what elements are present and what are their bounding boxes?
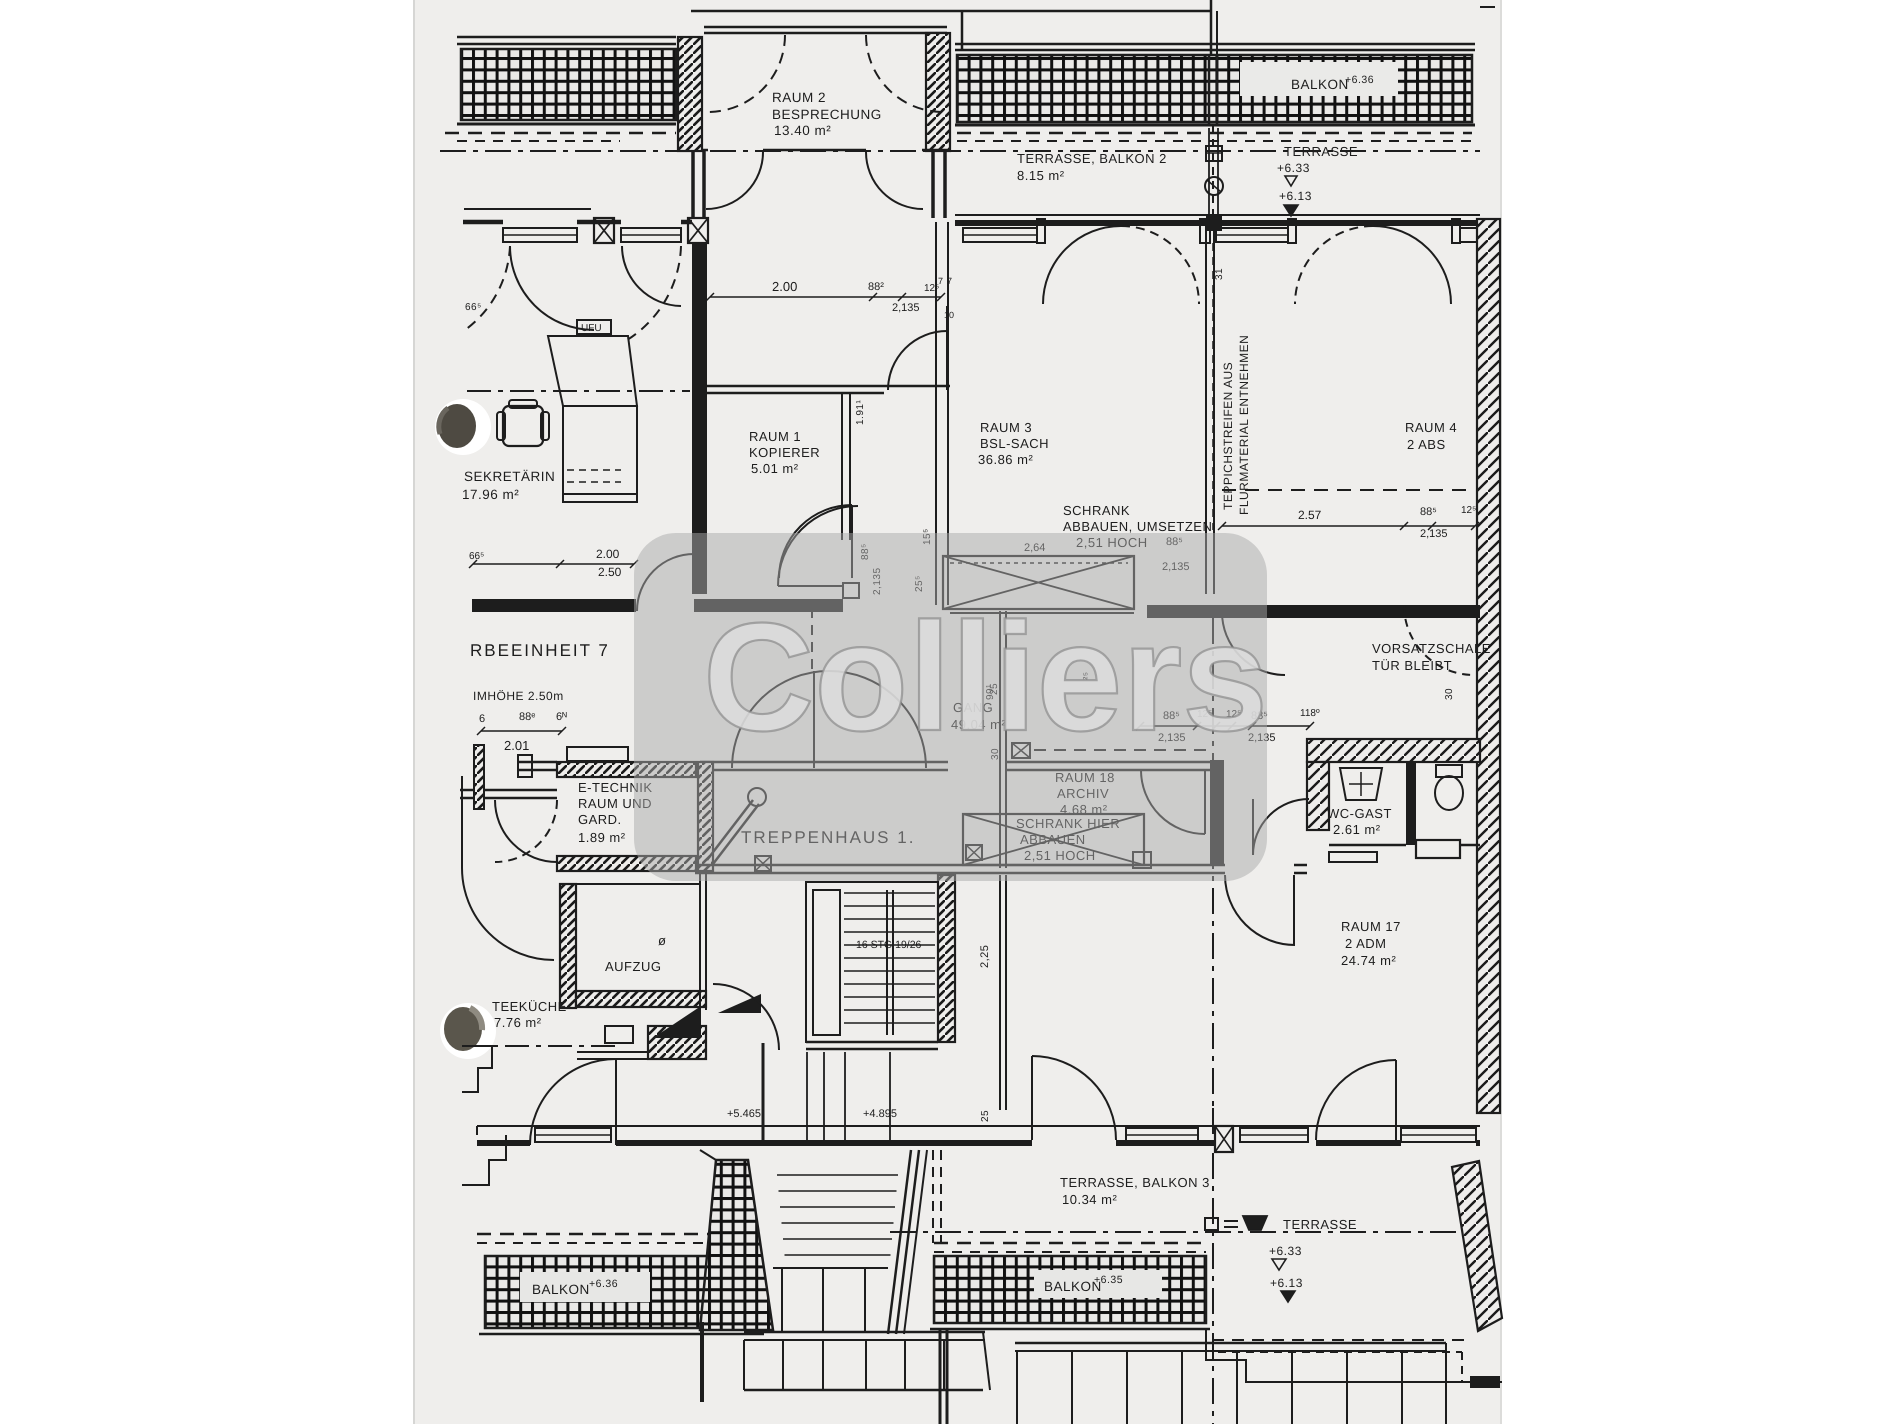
svg-text:RBEEINHEIT 7: RBEEINHEIT 7 [470,641,610,660]
svg-text:66⁵: 66⁵ [465,302,482,313]
svg-text:GARD.: GARD. [578,812,622,827]
svg-text:IMHÖHE 2.50m: IMHÖHE 2.50m [473,689,564,703]
svg-text:TERRASSE: TERRASSE [1284,144,1358,159]
svg-text:SEKRETÄRIN: SEKRETÄRIN [464,469,555,484]
svg-text:2.57: 2.57 [1298,508,1322,522]
svg-text:+6.13: +6.13 [1270,1276,1303,1290]
svg-text:66⁵: 66⁵ [469,551,484,562]
svg-text:17.96 m²: 17.96 m² [462,487,519,502]
svg-text:UFU: UFU [581,323,602,334]
svg-text:RAUM 1: RAUM 1 [749,429,801,444]
svg-text:24.74 m²: 24.74 m² [1341,953,1396,968]
svg-text:+6.36: +6.36 [589,1278,618,1290]
svg-text:Colliers: Colliers [703,591,1268,763]
svg-text:ABBAUEN, UMSETZEN: ABBAUEN, UMSETZEN [1063,519,1212,534]
svg-text:30: 30 [1444,688,1455,700]
svg-text:BESPRECHUNG: BESPRECHUNG [772,107,882,122]
svg-text:TERRASSE: TERRASSE [1283,1217,1357,1232]
svg-text:2 ADM: 2 ADM [1345,936,1387,951]
svg-text:+5.465: +5.465 [727,1108,761,1120]
svg-text:ø: ø [658,933,666,948]
svg-text:TÜR BLEIBT: TÜR BLEIBT [1372,658,1452,673]
svg-text:2,25: 2,25 [979,945,991,968]
svg-text:2.00: 2.00 [772,279,797,294]
svg-text:7.76 m²: 7.76 m² [494,1015,542,1030]
svg-text:88²: 88² [868,281,884,293]
svg-text:RAUM 4: RAUM 4 [1405,420,1457,435]
svg-text:+6.33: +6.33 [1269,1244,1302,1258]
svg-text:31: 31 [1214,268,1225,280]
svg-text:+6.33: +6.33 [1277,161,1310,175]
svg-text:1.91¹: 1.91¹ [855,400,866,425]
svg-text:10: 10 [944,310,954,320]
svg-text:SCHRANK: SCHRANK [1063,503,1130,518]
svg-text:+4.895: +4.895 [863,1108,897,1120]
svg-text:2,135: 2,135 [892,302,920,314]
svg-text:2 ABS: 2 ABS [1407,437,1446,452]
svg-text:BALKON: BALKON [532,1282,590,1297]
svg-text:5.01 m²: 5.01 m² [751,461,799,476]
svg-text:12⁵: 12⁵ [1461,505,1476,516]
svg-text:25: 25 [980,1110,991,1122]
svg-text:TERRASSE, BALKON 2: TERRASSE, BALKON 2 [1017,151,1167,166]
svg-text:BSL-SACH: BSL-SACH [980,436,1049,451]
svg-text:6: 6 [479,713,485,725]
svg-text:2.61 m²: 2.61 m² [1333,822,1381,837]
svg-text:88⁵: 88⁵ [1420,506,1437,518]
svg-text:RAUM 3: RAUM 3 [980,420,1032,435]
svg-text:88ᵉ: 88ᵉ [519,711,535,723]
svg-text:AUFZUG: AUFZUG [605,959,661,974]
svg-text:36.86 m²: 36.86 m² [978,452,1033,467]
svg-text:BALKON: BALKON [1291,77,1349,92]
svg-text:13.40 m²: 13.40 m² [774,123,831,138]
svg-text:RAUM 2: RAUM 2 [772,90,826,105]
svg-text:2.50: 2.50 [598,565,622,579]
svg-text:10.34 m²: 10.34 m² [1062,1192,1117,1207]
svg-text:1.89 m²: 1.89 m² [578,830,626,845]
svg-text:2.00: 2.00 [596,547,620,561]
svg-text:7: 7 [938,276,943,286]
svg-text:+6.13: +6.13 [1279,189,1312,203]
svg-text:2.01: 2.01 [504,738,529,753]
svg-text:118º: 118º [1300,708,1320,719]
svg-text:TEPPICHSTREIFEN AUS: TEPPICHSTREIFEN AUS [1221,362,1235,510]
svg-text:VORSATZSCHALE: VORSATZSCHALE [1372,641,1491,656]
svg-text:8.15 m²: 8.15 m² [1017,168,1065,183]
svg-text:+6.35: +6.35 [1094,1274,1123,1286]
svg-text:WC-GAST: WC-GAST [1327,806,1392,821]
svg-text:+6.36: +6.36 [1345,74,1374,86]
svg-text:2,135: 2,135 [1420,528,1448,540]
svg-text:TERRASSE, BALKON 3: TERRASSE, BALKON 3 [1060,1175,1210,1190]
svg-text:6ᴺ: 6ᴺ [556,711,567,723]
svg-text:TEEKÜCHE: TEEKÜCHE [492,999,567,1014]
svg-text:KOPIERER: KOPIERER [749,445,820,460]
svg-text:16 STG 19/26: 16 STG 19/26 [856,939,922,951]
svg-text:RAUM 17: RAUM 17 [1341,919,1401,934]
svg-text:FLURMATERIAL ENTNEHMEN: FLURMATERIAL ENTNEHMEN [1237,335,1251,515]
